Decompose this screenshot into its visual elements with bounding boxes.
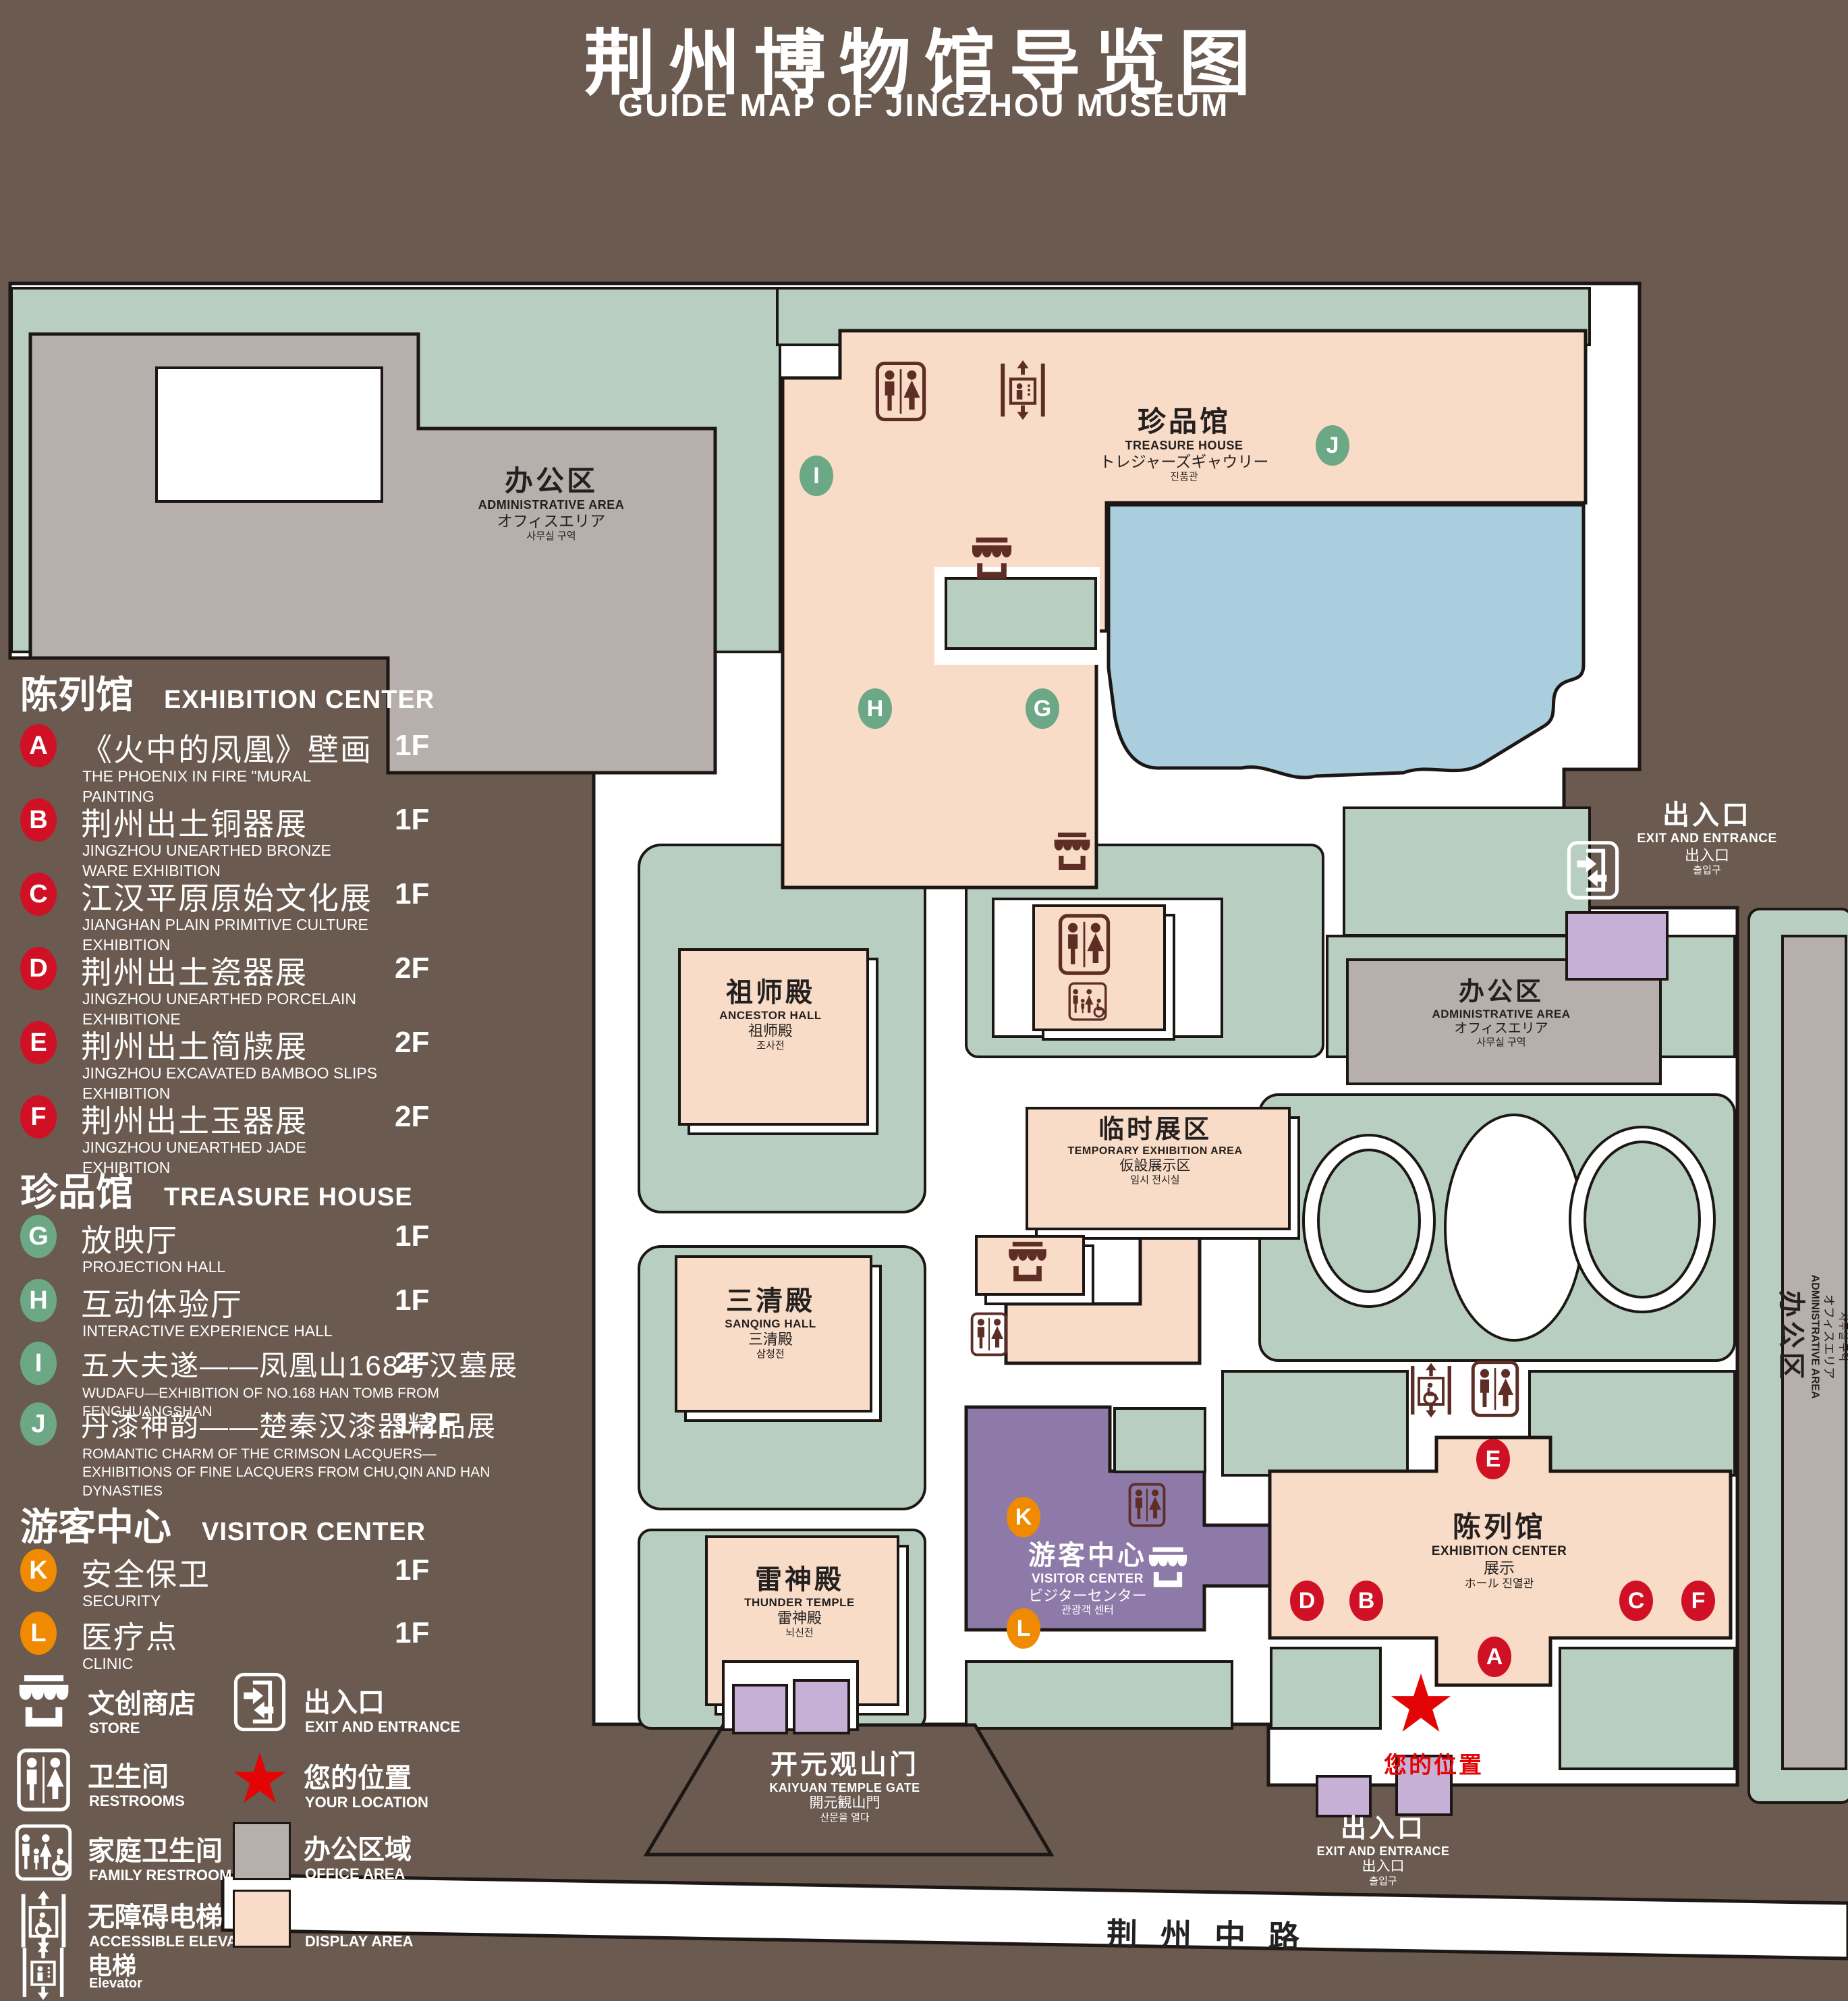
legend-symbol-sublabel: YOUR LOCATION xyxy=(305,1794,428,1811)
map-marker-h: H xyxy=(858,688,892,729)
legend-item-label: 荆州出土瓷器展 xyxy=(81,948,308,993)
legend-symbol-label: 展示区域 xyxy=(304,1895,412,1934)
legend-symbol-label: 卫生间 xyxy=(88,1755,169,1794)
legend-badge-k: K xyxy=(20,1549,57,1592)
restrooms-icon xyxy=(874,361,928,422)
admin-top-left-label: 办公区 ADMINISTRATIVE AREA オフィスエリア 사무실 구역 xyxy=(416,464,686,543)
legend-badge-e: E xyxy=(20,1021,57,1064)
legend-item-floor: 1F xyxy=(395,729,429,763)
legend-item-floor: 1F xyxy=(395,803,429,837)
map-marker-e: E xyxy=(1476,1439,1510,1479)
map-marker-i: I xyxy=(800,456,833,496)
map-marker-g: G xyxy=(1026,688,1059,729)
legend-item-label: 江汉平原原始文化展 xyxy=(81,874,372,919)
legend-item-floor: 2F xyxy=(395,1026,429,1060)
exit-bottom-label: 出入口 EXIT AND ENTRANCE 出入口 출입구 xyxy=(1248,1814,1518,1888)
legend-item-floor: 2F xyxy=(395,952,429,985)
map-marker-c: C xyxy=(1619,1581,1653,1621)
legend-item-floor: 1F xyxy=(395,1219,429,1253)
exit-right-label: 出入口 EXIT AND ENTRANCE 出入口 출입구 xyxy=(1572,800,1842,876)
legend-section-treasure-house: 珍品馆 TREASURE HOUSE xyxy=(20,1162,413,1217)
ancestor-hall-label: 祖师殿 ANCESTOR HALL 祖师殿 조사전 xyxy=(636,977,905,1052)
restrooms-icon xyxy=(1471,1355,1519,1423)
legend-item-floor: 2F xyxy=(395,1100,429,1134)
legend-item-label: 荆州出土简牍展 xyxy=(81,1022,308,1067)
office-area-swatch xyxy=(233,1822,291,1880)
store-icon xyxy=(1007,1242,1048,1285)
legend-item-label: 互动体验厅 xyxy=(81,1280,243,1325)
legend-item-label: 医疗点 xyxy=(81,1613,178,1657)
legend-badge-i: I xyxy=(20,1342,57,1385)
legend-item-floor: 1F xyxy=(395,1284,429,1317)
exit-icon xyxy=(233,1672,287,1732)
treasure-house-label: 珍品馆 TREASURE HOUSE トレジャーズギャウリー 진품관 xyxy=(1049,405,1319,483)
legend-item-sublabel: INTERACTIVE EXPERIENCE HALL xyxy=(82,1321,333,1342)
legend-symbol-label: 文创商店 xyxy=(88,1682,196,1721)
legend-item-label: 《火中的凤凰》壁画 xyxy=(81,725,372,770)
legend-symbol-label: 无障碍电梯 xyxy=(88,1895,223,1934)
legend-item-floor: 1F xyxy=(395,1554,429,1587)
restrooms-icon xyxy=(1128,1481,1166,1529)
pond xyxy=(1109,505,1584,777)
legend-symbol-label: 您的位置 xyxy=(304,1756,412,1795)
map-marker-f: F xyxy=(1681,1581,1715,1621)
admin-right-label: 사무실 구역 オフィスエリア ADMINISTRATIVE AREA 办公区 xyxy=(1774,898,1848,1776)
elevator-icon xyxy=(999,359,1047,421)
your-location-label: 您的位置 xyxy=(1333,1747,1535,1780)
display-area-swatch xyxy=(233,1890,291,1948)
legend-symbol-sublabel: Elevator xyxy=(89,1976,142,1992)
legend-item-label: 荆州出土铜器展 xyxy=(81,800,308,844)
legend-item-sublabel: ROMANTIC CHARM OF THE CRIMSON LACQUERS—E… xyxy=(82,1445,501,1500)
legend-badge-f: F xyxy=(20,1095,57,1139)
legend-symbol-sublabel: EXIT AND ENTRANCE xyxy=(305,1718,460,1736)
legend-section-exhibition-center: 陈列馆 EXHIBITION CENTER xyxy=(20,665,435,719)
legend-symbol-sublabel: OFFICE AREA xyxy=(305,1865,405,1883)
store-icon xyxy=(1053,831,1092,875)
gate-label: 开元观山门 KAIYUAN TEMPLE GATE 開元観山門 산문을 열다 xyxy=(710,1749,980,1824)
legend-badge-d: D xyxy=(20,947,57,990)
map-marker-b: B xyxy=(1349,1581,1383,1621)
legend-item-label: 放映厅 xyxy=(81,1216,178,1261)
store-icon xyxy=(970,537,1013,584)
legend-symbol-label: 办公区域 xyxy=(304,1828,412,1867)
restrooms-icon xyxy=(15,1748,72,1812)
legend-badge-g: G xyxy=(20,1215,57,1258)
thunder-temple-label: 雷神殿 THUNDER TEMPLE 雷神殿 뇌신전 xyxy=(665,1564,934,1639)
admin-center-label: 办公区 ADMINISTRATIVE AREA オフィスエリア 사무실 구역 xyxy=(1366,977,1636,1049)
gate-building xyxy=(1565,911,1669,981)
map-marker-l: L xyxy=(1007,1608,1040,1649)
exhibition-center-label: 陈列馆 EXHIBITION CENTER 展示 ホール 진열관 xyxy=(1364,1510,1634,1591)
legend-item-floor: 1F xyxy=(395,877,429,911)
legend-badge-j: J xyxy=(20,1402,57,1446)
legend-badge-h: H xyxy=(20,1279,57,1322)
legend-symbol-label: 出入口 xyxy=(304,1680,385,1720)
family-restroom-icon xyxy=(15,1822,72,1883)
legend-symbol-sublabel: RESTROOMS xyxy=(89,1792,185,1810)
road-label: 荆州中路 xyxy=(1107,1909,1323,1957)
legend-section-visitor-center: 游客中心 VISITOR CENTER xyxy=(20,1497,426,1552)
restrooms-icon xyxy=(1058,912,1111,977)
green-patch xyxy=(945,577,1097,650)
legend-item-floor: 1F xyxy=(395,1616,429,1650)
location-star xyxy=(1390,1672,1452,1734)
legend-badge-l: L xyxy=(20,1612,57,1655)
restrooms-icon xyxy=(970,1312,1008,1356)
accessible-elevator-icon xyxy=(1409,1358,1453,1423)
legend-symbol-sublabel: DISPLAY AREA xyxy=(305,1933,414,1950)
map-marker-d: D xyxy=(1290,1581,1324,1621)
legend-symbol-sublabel: STORE xyxy=(89,1720,140,1737)
legend-item-sublabel: SECURITY xyxy=(82,1591,161,1612)
temporary-area-label: 临时展区 TEMPORARY EXHIBITION AREA 仮設展示区 임시 … xyxy=(1020,1115,1290,1186)
visitor-center-label: 游客中心 VISITOR CENTER ビジターセンター 관광객 센터 xyxy=(953,1540,1223,1617)
legend-item-sublabel: PROJECTION HALL xyxy=(82,1257,225,1278)
map-marker-k: K xyxy=(1007,1497,1040,1537)
elevator-icon xyxy=(17,1944,69,2001)
legend-symbol-label: 家庭卫生间 xyxy=(88,1829,223,1868)
family-restroom-icon xyxy=(1061,982,1115,1021)
legend-item-label: 五大夫遂——凤凰山168号汉墓展 xyxy=(81,1343,518,1384)
legend-badge-b: B xyxy=(20,798,57,842)
legend-item-label: 安全保卫 xyxy=(81,1550,211,1595)
legend-item-label: 荆州出土玉器展 xyxy=(81,1097,308,1141)
gate-pillar xyxy=(793,1679,850,1734)
legend-badge-c: C xyxy=(20,873,57,916)
sanqing-hall-label: 三清殿 SANQING HALL 三清殿 삼청전 xyxy=(636,1286,905,1361)
gate-pillar xyxy=(732,1684,788,1734)
legend-item-floor: 2F xyxy=(395,1346,429,1380)
store-icon xyxy=(17,1675,71,1732)
gate-building xyxy=(1316,1775,1372,1817)
map-marker-j: J xyxy=(1316,425,1349,466)
location-star xyxy=(233,1751,287,1805)
accessible-elevator-icon xyxy=(15,1890,72,1952)
legend-item-floor: 1-2F xyxy=(395,1407,455,1441)
green-patch xyxy=(1113,1407,1206,1473)
legend-item-sublabel: CLINIC xyxy=(82,1654,133,1674)
legend-badge-a: A xyxy=(20,724,57,767)
map-marker-a: A xyxy=(1478,1637,1511,1677)
legend-symbol-sublabel: FAMILY RESTROOMS xyxy=(89,1867,242,1884)
courtyard xyxy=(155,366,383,503)
